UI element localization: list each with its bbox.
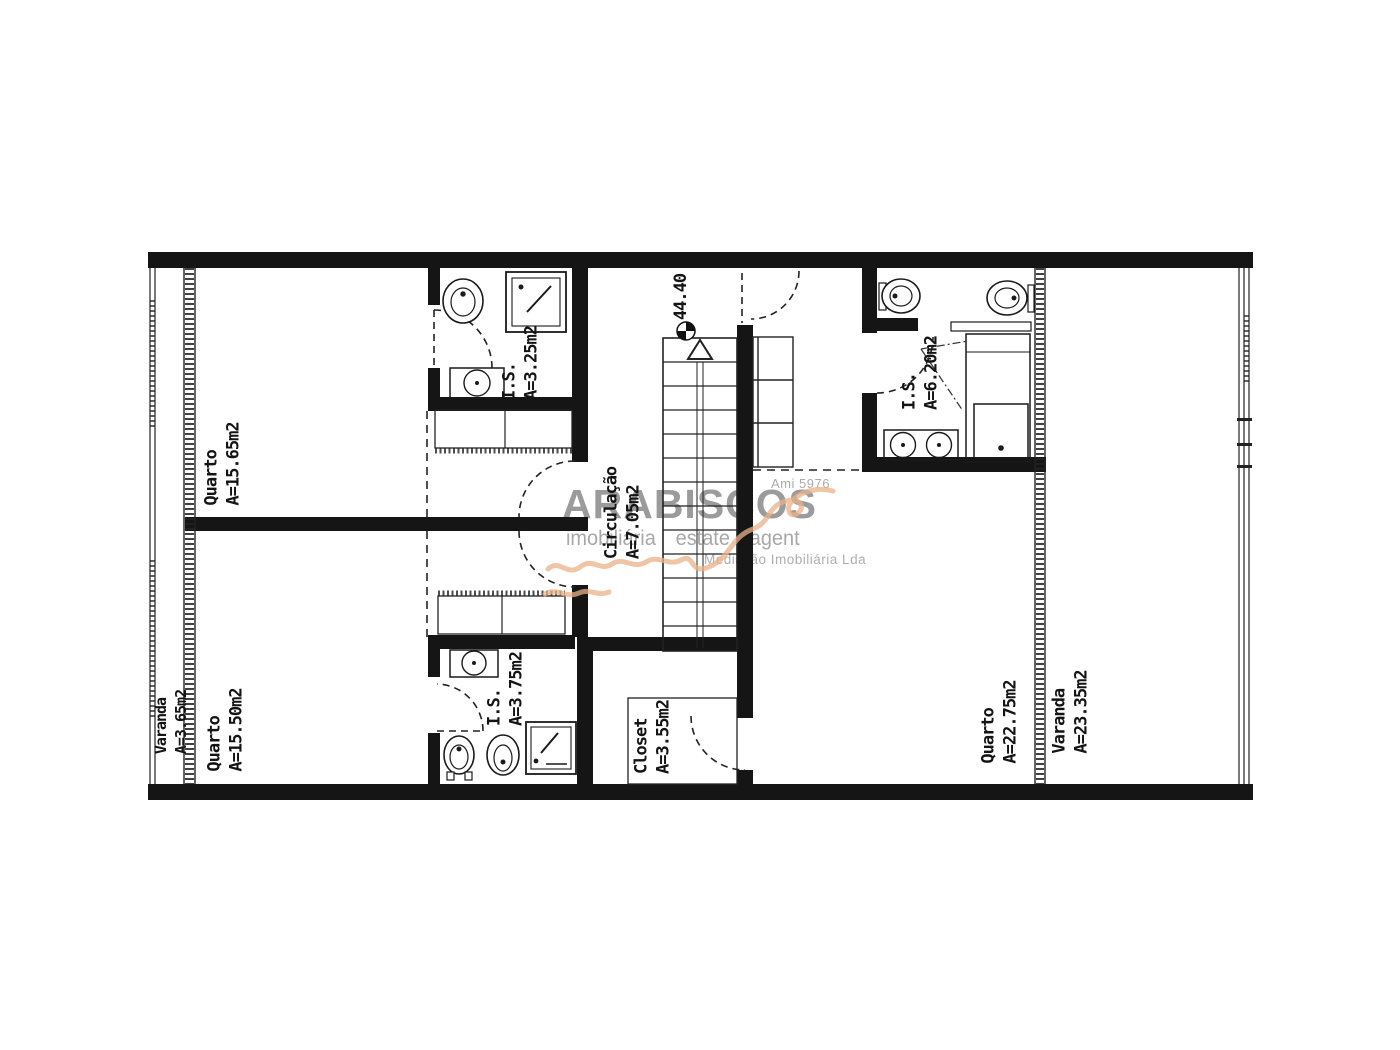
- room-label-is-right: I.S. A=6.20m2: [899, 336, 944, 410]
- room-name: Quarto: [204, 688, 226, 771]
- room-name: I.S.: [499, 326, 521, 400]
- floorplan-page: Ami 5976 ARABISCOS imobiliária estate ag…: [0, 0, 1400, 1050]
- room-label-is-top: I.S. A=3.25m2: [499, 326, 544, 400]
- room-label-quarto-3: Quarto A=22.75m2: [978, 680, 1023, 763]
- room-area: A=23.35m2: [1071, 670, 1093, 753]
- room-area: A=3.75m2: [506, 652, 528, 726]
- room-name: I.S.: [484, 652, 506, 726]
- room-name: Closet: [631, 700, 653, 774]
- room-label-circulacao: Circulação A=7.05m2: [601, 467, 646, 559]
- room-label-is-bottom: I.S. A=3.75m2: [484, 652, 529, 726]
- room-label-varanda-right: Varanda A=23.35m2: [1049, 670, 1094, 753]
- room-area: A=3.55m2: [653, 700, 675, 774]
- room-label-quarto-1: Quarto A=15.65m2: [201, 422, 246, 505]
- room-area: A=3.25m2: [521, 326, 543, 400]
- watermark-squiggle: [0, 0, 1400, 1050]
- room-name: Quarto: [201, 422, 223, 505]
- room-name: Varanda: [152, 690, 172, 754]
- room-name: Quarto: [978, 680, 1000, 763]
- room-name: I.S.: [899, 336, 921, 410]
- room-area: A=6.20m2: [921, 336, 943, 410]
- level-value: 44.40: [670, 274, 692, 320]
- level-mark-label: 44.40: [670, 274, 692, 320]
- room-area: A=15.65m2: [223, 422, 245, 505]
- room-label-quarto-2: Quarto A=15.50m2: [204, 688, 249, 771]
- room-label-closet: Closet A=3.55m2: [631, 700, 676, 774]
- room-area: A=15.50m2: [226, 688, 248, 771]
- room-area: A=22.75m2: [1000, 680, 1022, 763]
- room-area: A=7.05m2: [623, 467, 645, 559]
- room-area: A=3.65m2: [172, 690, 192, 754]
- room-name: Circulação: [601, 467, 623, 559]
- room-label-varanda-left: Varanda A=3.65m2: [152, 690, 192, 754]
- room-name: Varanda: [1049, 670, 1071, 753]
